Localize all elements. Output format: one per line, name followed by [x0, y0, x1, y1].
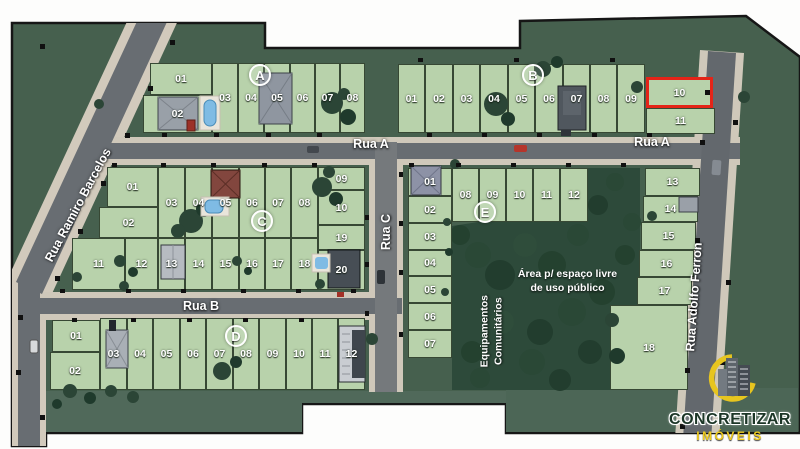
- lot-A-02: [143, 95, 212, 133]
- lot-C-19: [318, 225, 365, 250]
- lot-E-10: [506, 168, 533, 222]
- lot-B-09: [617, 64, 645, 133]
- lot-C-09: [318, 167, 365, 190]
- lot-C-02: [99, 207, 158, 238]
- lot-C-05: [212, 167, 239, 238]
- block-badge-d: D: [225, 325, 247, 347]
- building-icon: [698, 352, 762, 404]
- lot-E-13: [645, 168, 700, 196]
- lot-A-01: [150, 63, 212, 95]
- lot-B-04: [480, 64, 508, 133]
- lot-E-03: [408, 223, 452, 250]
- lot-C-01: [107, 167, 158, 207]
- block-badge-a: A: [249, 64, 271, 86]
- lot-B-11: [646, 108, 715, 134]
- lot-D-03: [100, 318, 127, 390]
- lot-C-12: [125, 238, 158, 290]
- block-badge-e: E: [474, 201, 496, 223]
- block-badge-b: B: [522, 64, 544, 86]
- lot-D-01: [52, 320, 100, 352]
- lot-C-13: [158, 238, 185, 290]
- lot-E-11: [533, 168, 560, 222]
- lot-E-05: [408, 276, 452, 303]
- lot-C-11: [72, 238, 125, 290]
- logo-tagline: IMÓVEIS: [655, 429, 800, 443]
- brand-logo: CONCRETIZAR IMÓVEIS: [655, 352, 800, 447]
- lot-D-10: [286, 318, 312, 390]
- lot-C-14: [185, 238, 212, 290]
- lot-B-08: [590, 64, 617, 133]
- lot-A-08: [340, 63, 365, 133]
- lot-D-04: [127, 318, 153, 390]
- lot-A-03: [212, 63, 238, 133]
- lot-E-01: [408, 168, 452, 196]
- plat-map: 0102030405060708010203040506070809101101…: [0, 0, 800, 449]
- block-badge-c: C: [251, 210, 273, 232]
- lot-E-12: [560, 168, 588, 222]
- lot-D-02: [50, 352, 100, 390]
- street-label-rua-c: Rua C: [379, 212, 393, 252]
- lot-C-10: [318, 190, 365, 225]
- lot-D-12: [338, 318, 365, 390]
- public-space-label: Área p/ espaço livre de uso público: [490, 267, 645, 295]
- lot-D-05: [153, 318, 180, 390]
- lot-C-16: [239, 238, 265, 290]
- lot-E-06: [408, 303, 452, 330]
- street-label-rua-a: Rua A: [346, 137, 396, 151]
- community-equipment-label: Equipamentos Comunitários: [477, 269, 505, 394]
- lot-E-04: [408, 250, 452, 276]
- lot-C-03: [158, 167, 185, 238]
- lot-E-15: [641, 222, 696, 250]
- lot-B-10: [646, 77, 713, 108]
- street-label-rua-b: Rua B: [176, 299, 226, 313]
- lot-D-11: [312, 318, 338, 390]
- lot-C-15: [212, 238, 239, 290]
- lot-B-01: [398, 64, 425, 133]
- lot-D-06: [180, 318, 206, 390]
- lot-D-09: [259, 318, 286, 390]
- lot-B-03: [453, 64, 480, 133]
- lot-C-20: [318, 250, 365, 290]
- lot-C-18: [291, 238, 318, 290]
- lot-C-08: [291, 167, 318, 238]
- lot-E-07: [408, 330, 452, 358]
- lot-C-04: [185, 167, 212, 238]
- lot-E-14: [643, 196, 698, 222]
- logo-name: CONCRETIZAR: [655, 411, 800, 429]
- lot-E-17: [637, 277, 692, 305]
- lot-B-02: [425, 64, 453, 133]
- lot-C-17: [265, 238, 291, 290]
- lot-A-06: [290, 63, 315, 133]
- lot-A-07: [315, 63, 340, 133]
- lot-E-16: [639, 250, 694, 277]
- street-label-rua-a-2: Rua A: [627, 135, 677, 149]
- lot-E-02: [408, 196, 452, 223]
- lot-B-07: [563, 64, 590, 133]
